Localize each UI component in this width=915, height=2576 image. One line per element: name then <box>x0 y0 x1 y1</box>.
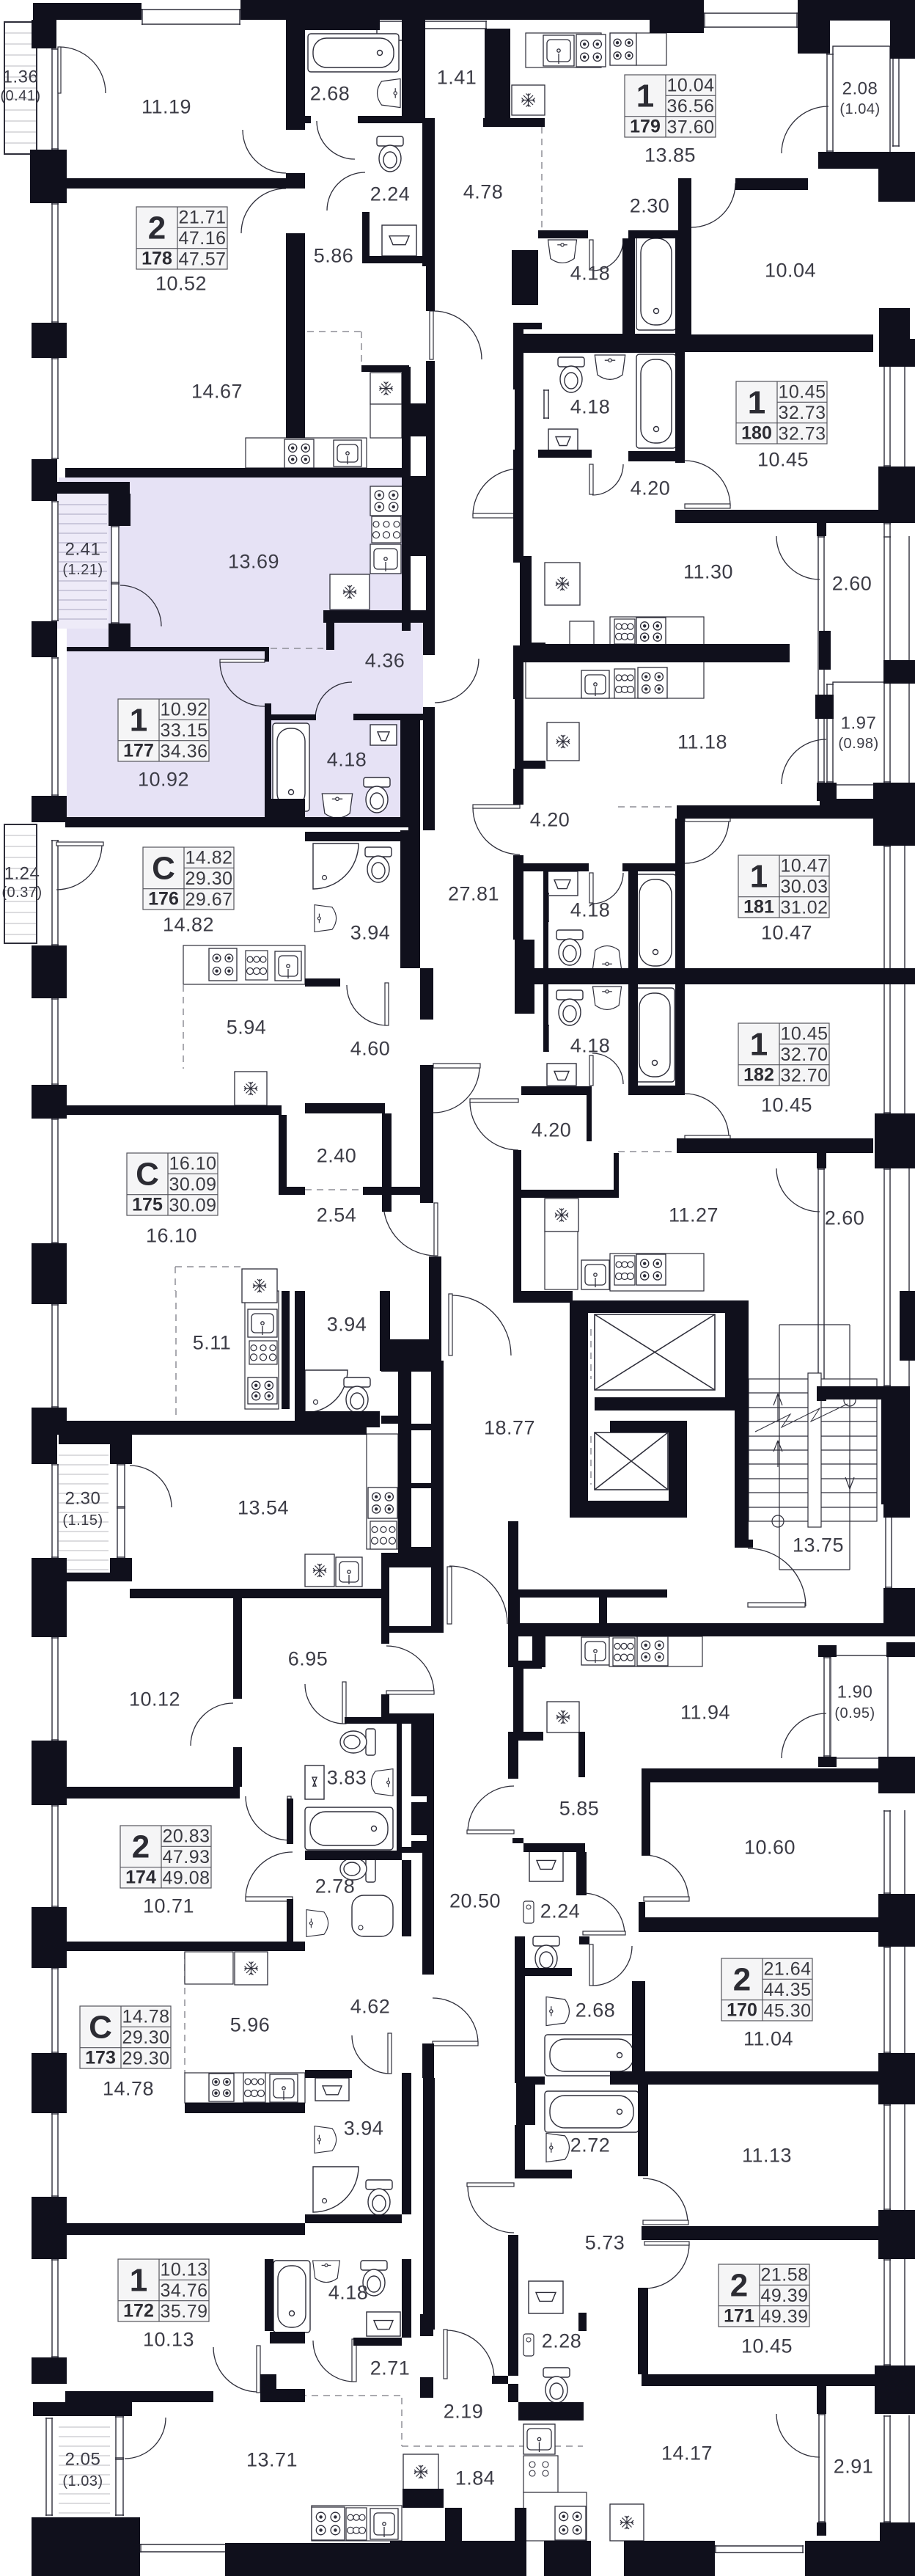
svg-text:20.50: 20.50 <box>449 1889 501 1911</box>
svg-text:11.27: 11.27 <box>669 1204 719 1226</box>
svg-text:33.15: 33.15 <box>160 720 207 741</box>
svg-text:4.36: 4.36 <box>365 649 405 671</box>
svg-text:10.45: 10.45 <box>757 448 809 470</box>
svg-text:4.18: 4.18 <box>570 1034 611 1056</box>
svg-text:2.54: 2.54 <box>317 1204 357 1226</box>
svg-text:34.76: 34.76 <box>160 2280 207 2301</box>
svg-text:35.79: 35.79 <box>160 2301 207 2321</box>
svg-text:29.67: 29.67 <box>185 889 232 910</box>
svg-text:1.84: 1.84 <box>455 2467 496 2489</box>
svg-text:2.24: 2.24 <box>540 1900 581 1922</box>
svg-text:10.92: 10.92 <box>160 700 207 720</box>
svg-text:1.41: 1.41 <box>437 66 477 88</box>
svg-text:2.30: 2.30 <box>630 194 670 216</box>
svg-text:32.70: 32.70 <box>780 1044 828 1065</box>
svg-text:5.94: 5.94 <box>227 1016 267 1038</box>
svg-text:4.18: 4.18 <box>570 899 611 921</box>
svg-text:1: 1 <box>130 2262 147 2298</box>
svg-text:11.18: 11.18 <box>677 731 727 753</box>
svg-text:16.10: 16.10 <box>146 1224 197 1246</box>
svg-text:(1.21): (1.21) <box>62 562 103 578</box>
svg-text:2.91: 2.91 <box>834 2455 874 2477</box>
svg-text:30.09: 30.09 <box>169 1174 216 1195</box>
svg-text:178: 178 <box>142 249 172 269</box>
svg-text:6.95: 6.95 <box>288 1647 328 1669</box>
svg-text:4.20: 4.20 <box>631 477 671 499</box>
svg-text:14.67: 14.67 <box>191 380 243 402</box>
svg-text:3.94: 3.94 <box>327 1313 367 1335</box>
svg-text:10.47: 10.47 <box>761 921 812 943</box>
svg-text:11.30: 11.30 <box>683 560 733 582</box>
svg-text:29.30: 29.30 <box>185 868 232 889</box>
svg-text:(0.37): (0.37) <box>1 885 42 901</box>
svg-text:176: 176 <box>148 889 179 910</box>
svg-text:29.30: 29.30 <box>122 2027 169 2048</box>
svg-text:10.13: 10.13 <box>143 2328 194 2350</box>
svg-text:1: 1 <box>636 78 654 114</box>
svg-text:2.19: 2.19 <box>444 2400 484 2422</box>
svg-text:1.36: 1.36 <box>3 67 39 87</box>
svg-text:4.20: 4.20 <box>532 1119 572 1141</box>
svg-text:5.96: 5.96 <box>230 2013 271 2035</box>
svg-text:2.28: 2.28 <box>542 2330 582 2352</box>
svg-text:4.18: 4.18 <box>327 748 367 770</box>
svg-text:49.08: 49.08 <box>162 1867 210 1888</box>
svg-text:10.04: 10.04 <box>666 76 714 96</box>
svg-text:C: C <box>89 2009 112 2045</box>
svg-text:4.20: 4.20 <box>530 808 570 830</box>
svg-text:2: 2 <box>730 2267 748 2303</box>
svg-text:180: 180 <box>741 423 772 444</box>
svg-text:18.77: 18.77 <box>484 1416 535 1438</box>
svg-text:2.05: 2.05 <box>65 2449 101 2469</box>
svg-text:(0.98): (0.98) <box>838 736 878 752</box>
svg-text:(0.95): (0.95) <box>834 1705 875 1721</box>
svg-text:175: 175 <box>132 1195 163 1215</box>
svg-text:14.17: 14.17 <box>661 2442 713 2464</box>
svg-text:10.12: 10.12 <box>129 1688 180 1710</box>
svg-text:5.73: 5.73 <box>585 2231 625 2253</box>
svg-text:11.19: 11.19 <box>142 95 191 117</box>
svg-text:10.45: 10.45 <box>778 382 826 403</box>
svg-text:47.93: 47.93 <box>162 1847 210 1867</box>
svg-text:4.62: 4.62 <box>350 1995 391 2017</box>
svg-text:30.09: 30.09 <box>169 1195 216 1215</box>
svg-text:179: 179 <box>630 117 661 137</box>
svg-text:31.02: 31.02 <box>780 897 828 918</box>
svg-text:2.60: 2.60 <box>825 1207 865 1229</box>
svg-text:2.30: 2.30 <box>65 1488 101 1508</box>
svg-text:5.11: 5.11 <box>193 1331 232 1353</box>
svg-text:32.73: 32.73 <box>778 403 826 423</box>
svg-text:13.85: 13.85 <box>644 144 696 166</box>
svg-text:1: 1 <box>748 384 765 420</box>
svg-text:10.52: 10.52 <box>155 272 207 294</box>
svg-text:21.58: 21.58 <box>760 2265 808 2286</box>
svg-text:1: 1 <box>750 1026 768 1062</box>
svg-text:13.54: 13.54 <box>238 1496 289 1518</box>
svg-text:16.10: 16.10 <box>169 1154 216 1174</box>
svg-text:1: 1 <box>130 702 147 738</box>
svg-text:29.30: 29.30 <box>122 2048 169 2068</box>
svg-text:3.83: 3.83 <box>327 1766 367 1788</box>
svg-text:47.16: 47.16 <box>178 228 226 249</box>
svg-text:(1.03): (1.03) <box>62 2473 103 2489</box>
svg-text:182: 182 <box>743 1065 774 1086</box>
svg-text:27.81: 27.81 <box>448 882 499 904</box>
svg-text:2: 2 <box>733 1961 751 1997</box>
svg-text:2.08: 2.08 <box>842 78 878 98</box>
svg-text:10.04: 10.04 <box>765 259 816 281</box>
svg-text:10.92: 10.92 <box>138 768 189 790</box>
svg-text:2.68: 2.68 <box>310 82 350 104</box>
svg-text:3.94: 3.94 <box>344 2117 384 2139</box>
svg-text:30.03: 30.03 <box>780 877 828 897</box>
svg-text:14.82: 14.82 <box>163 913 214 935</box>
svg-text:C: C <box>152 850 175 886</box>
svg-text:45.30: 45.30 <box>763 2000 811 2021</box>
svg-text:(0.41): (0.41) <box>0 88 40 104</box>
svg-text:2.60: 2.60 <box>832 572 872 594</box>
svg-text:2.68: 2.68 <box>576 1999 616 2021</box>
svg-text:49.39: 49.39 <box>760 2306 808 2327</box>
svg-text:C: C <box>136 1156 159 1192</box>
svg-text:1.90: 1.90 <box>837 1682 873 1702</box>
svg-text:(1.04): (1.04) <box>839 101 880 117</box>
svg-text:21.71: 21.71 <box>178 208 226 228</box>
svg-text:20.83: 20.83 <box>162 1826 210 1847</box>
svg-text:14.78: 14.78 <box>122 2007 169 2027</box>
svg-text:1: 1 <box>750 858 768 894</box>
svg-text:11.94: 11.94 <box>680 1701 730 1723</box>
svg-text:2: 2 <box>132 1829 150 1865</box>
svg-text:172: 172 <box>123 2301 154 2321</box>
svg-text:11.04: 11.04 <box>743 2027 793 2049</box>
svg-text:4.78: 4.78 <box>463 180 504 202</box>
svg-text:47.57: 47.57 <box>178 249 226 269</box>
svg-text:4.18: 4.18 <box>570 395 611 417</box>
svg-text:36.56: 36.56 <box>666 96 714 117</box>
svg-text:13.69: 13.69 <box>228 550 279 572</box>
svg-text:13.75: 13.75 <box>793 1534 844 1556</box>
svg-text:10.45: 10.45 <box>780 1024 828 1044</box>
svg-text:10.13: 10.13 <box>160 2260 207 2280</box>
svg-text:2.41: 2.41 <box>65 539 101 559</box>
svg-text:174: 174 <box>125 1867 156 1888</box>
svg-text:49.39: 49.39 <box>760 2286 808 2306</box>
svg-text:10.45: 10.45 <box>741 2335 793 2357</box>
svg-text:10.45: 10.45 <box>761 1094 812 1116</box>
svg-text:13.71: 13.71 <box>246 2448 298 2470</box>
svg-text:34.36: 34.36 <box>160 741 207 761</box>
svg-text:(1.15): (1.15) <box>62 1512 103 1529</box>
svg-text:170: 170 <box>727 2000 757 2021</box>
svg-text:11.13: 11.13 <box>742 2144 792 2166</box>
svg-text:1.24: 1.24 <box>4 863 40 883</box>
svg-text:177: 177 <box>123 741 154 761</box>
svg-text:4.18: 4.18 <box>570 262 611 284</box>
svg-text:181: 181 <box>743 897 774 918</box>
svg-text:2.40: 2.40 <box>317 1144 357 1166</box>
svg-text:1.97: 1.97 <box>841 713 877 733</box>
svg-text:3.94: 3.94 <box>350 921 391 943</box>
svg-text:44.35: 44.35 <box>763 1980 811 2000</box>
svg-text:21.64: 21.64 <box>763 1959 811 1980</box>
svg-text:4.18: 4.18 <box>328 2281 369 2303</box>
svg-text:32.73: 32.73 <box>778 423 826 444</box>
svg-text:14.78: 14.78 <box>103 2077 154 2099</box>
svg-text:171: 171 <box>724 2306 754 2327</box>
svg-text:14.82: 14.82 <box>185 848 232 868</box>
svg-text:10.47: 10.47 <box>780 856 828 877</box>
svg-text:2.78: 2.78 <box>315 1875 356 1897</box>
svg-text:5.85: 5.85 <box>559 1797 600 1819</box>
svg-text:2.72: 2.72 <box>570 2134 611 2156</box>
svg-text:2.71: 2.71 <box>370 2357 411 2379</box>
svg-text:10.71: 10.71 <box>143 1895 194 1917</box>
svg-text:2: 2 <box>148 210 166 246</box>
svg-text:4.60: 4.60 <box>350 1037 391 1059</box>
svg-text:37.60: 37.60 <box>666 117 714 137</box>
svg-text:173: 173 <box>85 2048 116 2068</box>
svg-text:32.70: 32.70 <box>780 1065 828 1086</box>
svg-text:5.86: 5.86 <box>314 244 354 266</box>
svg-text:10.60: 10.60 <box>744 1836 795 1858</box>
svg-text:2.24: 2.24 <box>370 183 411 205</box>
